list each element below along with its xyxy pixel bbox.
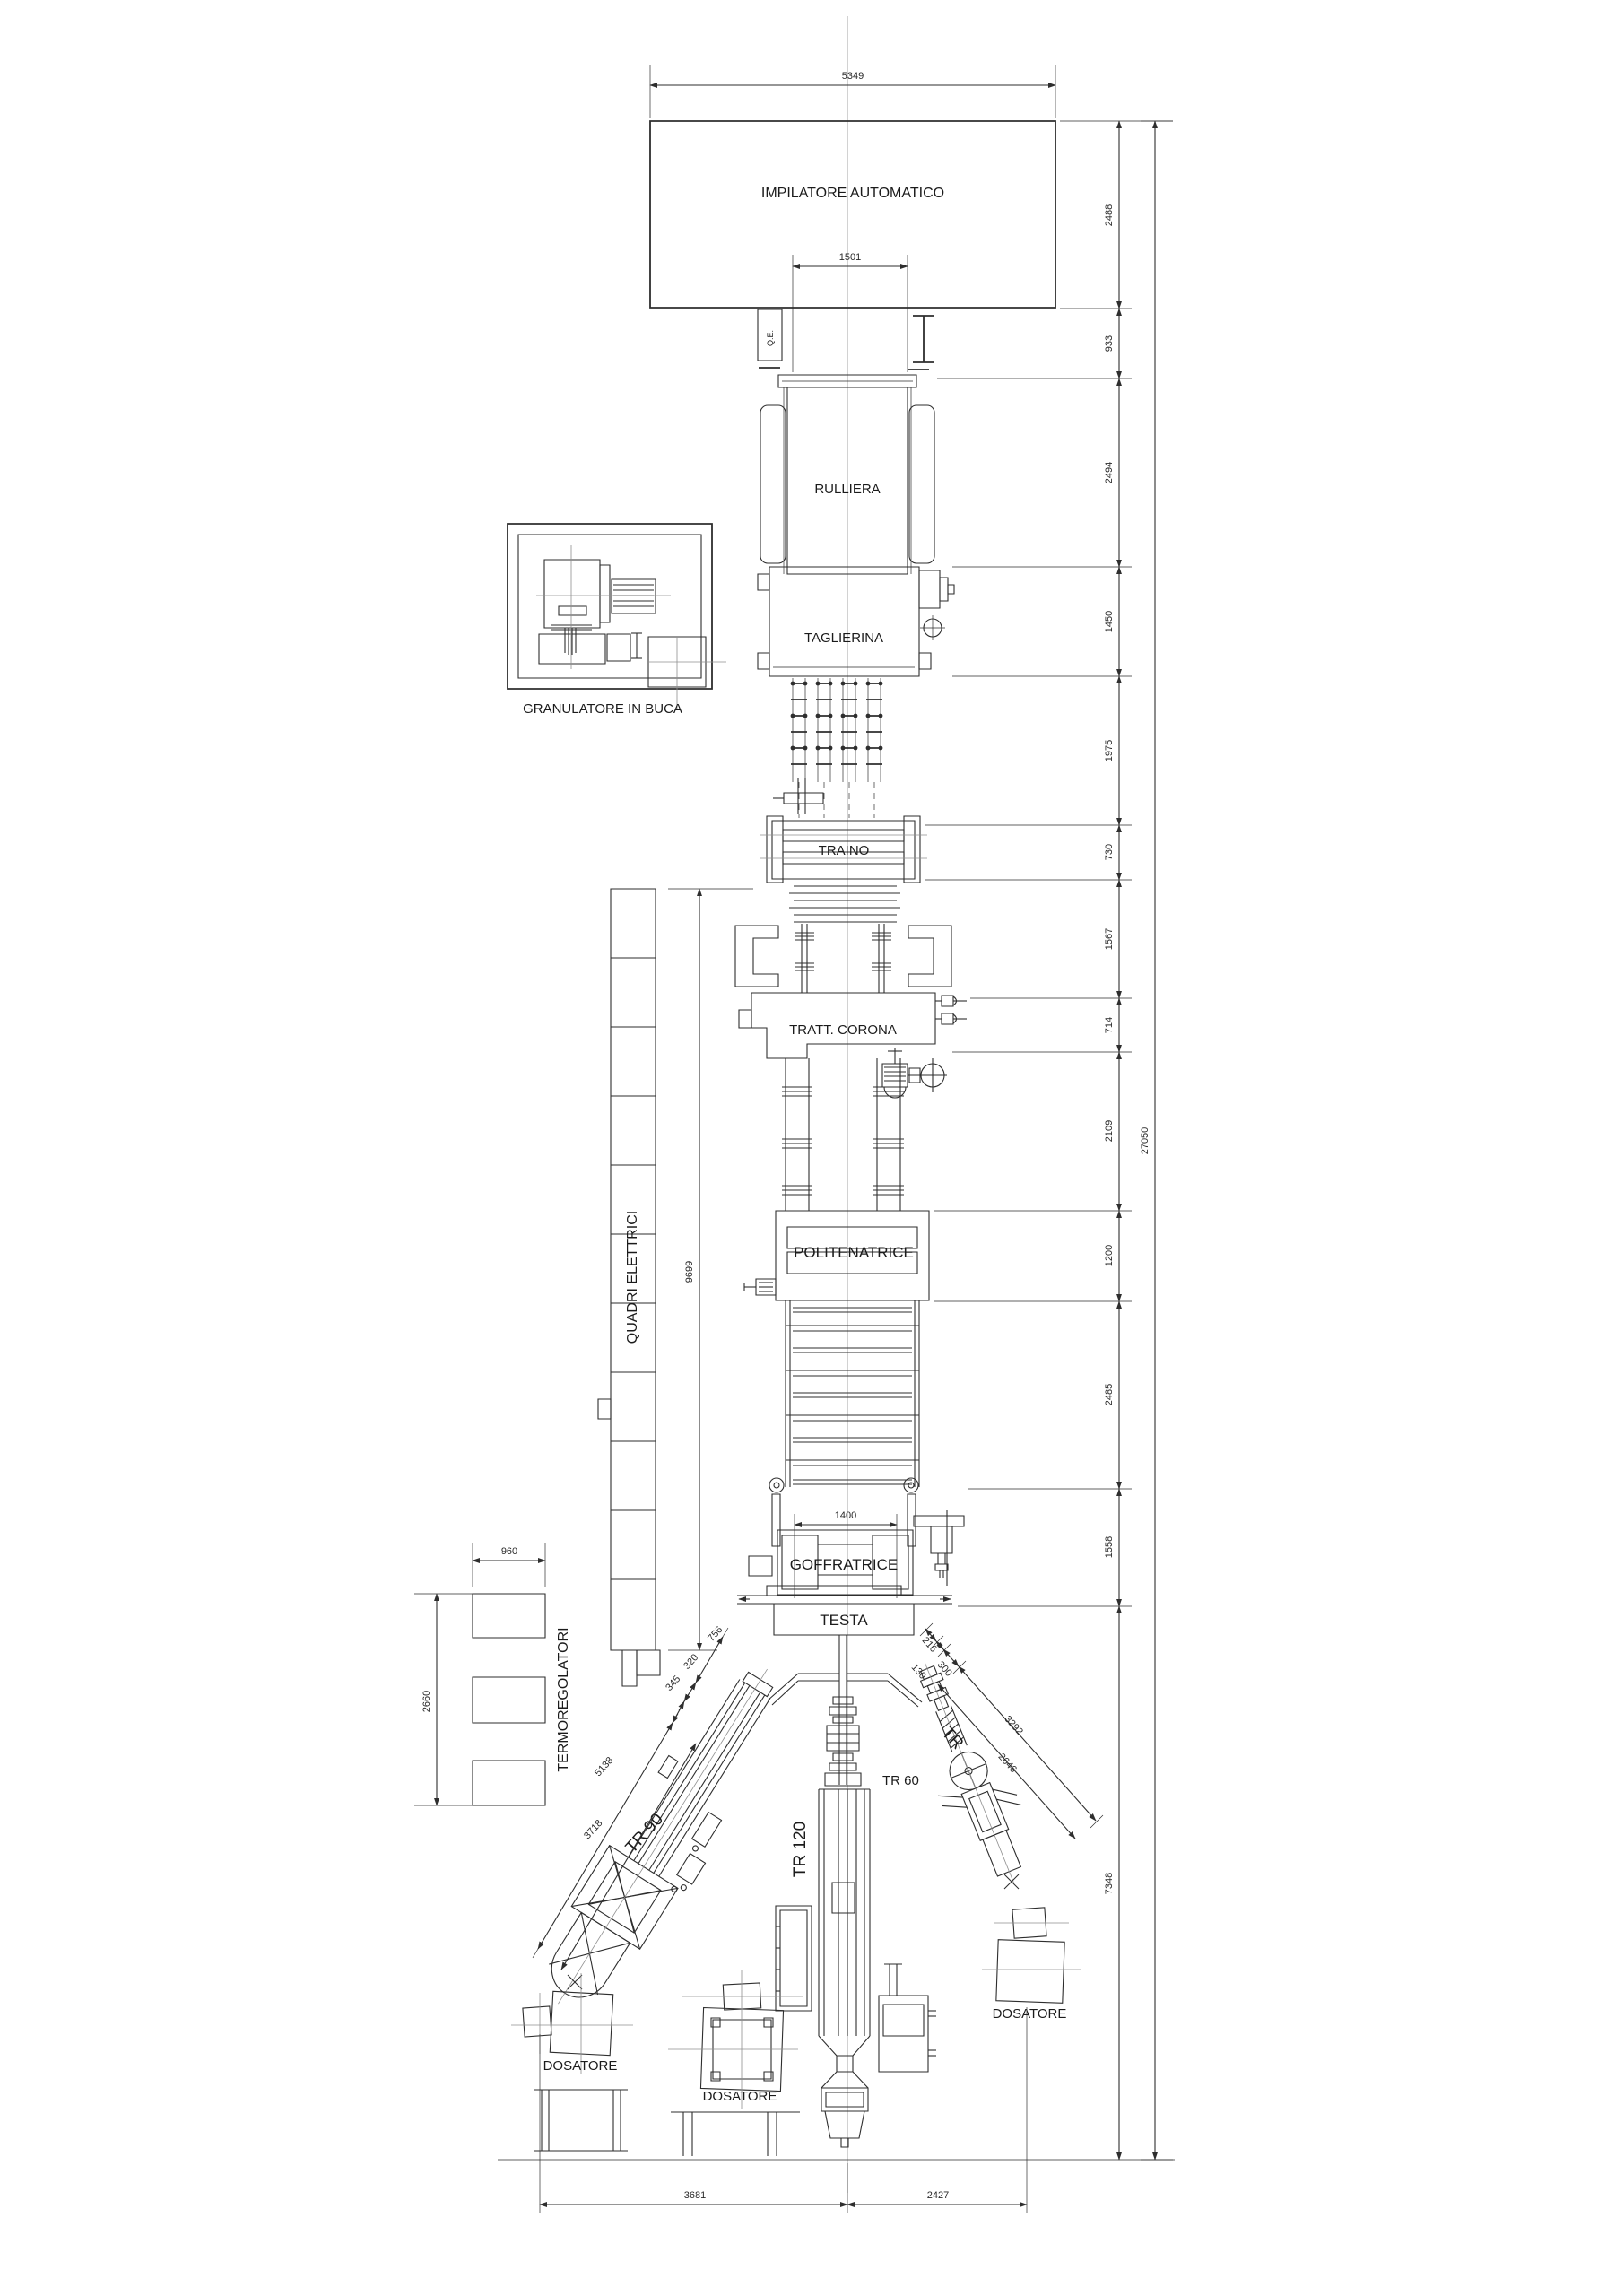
dim-tr90-345: 345 <box>664 1674 682 1693</box>
label-goffratrice: GOFFRATRICE <box>790 1556 899 1573</box>
label-granulatore: GRANULATORE IN BUCA <box>523 701 682 717</box>
dim-2427: 2427 <box>927 2190 949 2201</box>
dim-1400: 1400 <box>835 1510 856 1521</box>
machine-goffratrice: 1400 GOFFRATRICE <box>749 1478 964 1598</box>
dim-top-width: 5349 <box>650 65 1055 118</box>
dim-chain-7348: 7348 <box>1104 1873 1115 1894</box>
label-tr90: TR 90 <box>622 1810 667 1857</box>
machine-tr120: TR 120 <box>776 1789 870 2147</box>
label-rulliera: RULLIERA <box>814 482 880 497</box>
dim-chain-1975: 1975 <box>1104 740 1115 761</box>
label-dosatore-left: DOSATORE <box>543 2058 618 2074</box>
dosatore-center: DOSATORE <box>668 1970 803 2156</box>
label-termoregolatori: TERMOREGOLATORI <box>556 1627 571 1771</box>
label-politenatrice: POLITENATRICE <box>794 1244 914 1261</box>
dim-chain-2109: 2109 <box>1104 1120 1115 1142</box>
label-testa: TESTA <box>820 1612 868 1629</box>
label-tr120: TR 120 <box>791 1822 810 1877</box>
dim-chain-2485: 2485 <box>1104 1384 1115 1405</box>
dim-3681: 3681 <box>684 2190 706 2201</box>
dim-tr90-320: 320 <box>682 1652 700 1672</box>
drawing-sheet: 5349 IMPILATORE AUTOMATICO 1501 Q.E. RUL… <box>0 0 1624 2296</box>
dim-tr90-3718: 3718 <box>582 1818 604 1841</box>
label-quadri-elettrici: QUADRI ELETTRICI <box>625 1211 640 1344</box>
dosatore-right: DOSATORE <box>982 1908 1081 2022</box>
dim-chain-2488: 2488 <box>1104 204 1115 226</box>
machine-tr60: TR TR 60 <box>882 1649 1047 1897</box>
dim-2660: 2660 <box>421 1691 432 1712</box>
inset-granulatore: GRANULATORE IN BUCA <box>508 524 726 717</box>
roller-conveyor <box>773 678 882 818</box>
label-dosatore-right: DOSATORE <box>993 2006 1067 2022</box>
dosatore-left: DOSATORE <box>511 1973 633 2151</box>
machine-testa: TESTA <box>737 1586 952 1635</box>
melt-pipes <box>768 1635 922 1786</box>
dim-tr60-216: 216 <box>920 1635 939 1655</box>
label-impilatore: IMPILATORE AUTOMATICO <box>761 186 944 201</box>
roller-rows <box>791 682 883 764</box>
dim-chain-933: 933 <box>1104 335 1115 352</box>
label-dosatore-center: DOSATORE <box>703 2089 777 2104</box>
label-tratt-corona: TRATT. CORONA <box>789 1022 897 1038</box>
dim-chain-730: 730 <box>1104 844 1115 860</box>
label-qe: Q.E. <box>766 330 775 346</box>
label-taglierina: TAGLIERINA <box>804 631 883 646</box>
dim-chain-2494: 2494 <box>1104 462 1115 483</box>
dim-chain-714: 714 <box>1104 1017 1115 1033</box>
dim-tr60-130: 130 <box>909 1662 928 1682</box>
dim-chain-1558: 1558 <box>1104 1536 1115 1558</box>
dim-27050: 27050 <box>1140 1127 1151 1155</box>
bellows-stack <box>786 1300 919 1487</box>
side-feeder <box>879 1964 936 2072</box>
dim-9699: 9699 <box>684 1261 695 1283</box>
termoregolatori-group: 960 2660 TERMOREGOLATORI <box>414 1543 571 1805</box>
dim-chain-1567: 1567 <box>1104 928 1115 950</box>
dim-tr60-3292: 3292 <box>1003 1714 1025 1737</box>
traino-outlet <box>735 886 951 993</box>
label-tr60: TR 60 <box>882 1773 919 1788</box>
dim-right-chain: 2488 933 2494 1450 1975 730 1567 714 210… <box>498 121 1175 2160</box>
dim-tr60: 216 130 300 3292 2646 <box>909 1623 1103 1839</box>
machine-traino: TRAINO <box>760 816 927 883</box>
dim-overall: 27050 <box>1140 121 1173 2160</box>
machine-impilatore: IMPILATORE AUTOMATICO 1501 Q.E. <box>650 121 1055 372</box>
dim-tr90-5138: 5138 <box>593 1755 615 1779</box>
machine-politenatrice: POLITENATRICE <box>744 1211 929 1300</box>
label-traino: TRAINO <box>819 843 870 858</box>
machine-taglierina: TAGLIERINA <box>758 567 954 676</box>
dim-960: 960 <box>501 1546 517 1557</box>
dim-tr60-300: 300 <box>935 1659 954 1679</box>
dim-chain-1450: 1450 <box>1104 611 1115 632</box>
dim-5349: 5349 <box>842 71 864 82</box>
dim-1501: 1501 <box>839 252 861 263</box>
dim-chain-1200: 1200 <box>1104 1245 1115 1266</box>
layout-drawing: 5349 IMPILATORE AUTOMATICO 1501 Q.E. RUL… <box>0 0 1624 2296</box>
machine-tratt-corona: TRATT. CORONA <box>739 993 967 1098</box>
dim-tr90-756: 756 <box>706 1624 725 1644</box>
machine-quadri-elettrici: QUADRI ELETTRICI 9699 <box>598 889 753 1686</box>
